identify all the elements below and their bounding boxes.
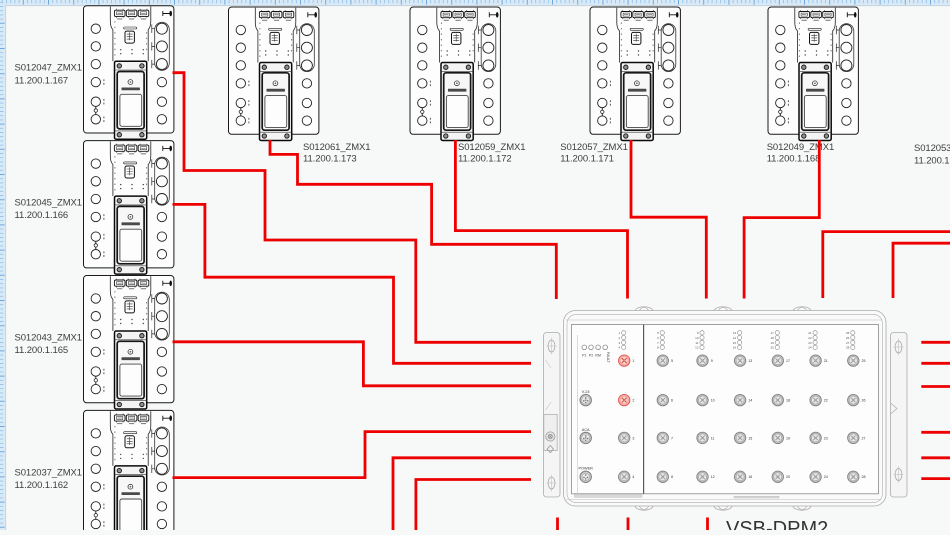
svg-text:14: 14 [748,399,752,403]
svg-text:P1: P1 [582,354,586,358]
svg-text:S012043_ZMX1: S012043_ZMX1 [15,333,82,344]
svg-text:11.200.1.172: 11.200.1.172 [458,154,512,165]
svg-text:11: 11 [711,436,715,440]
svg-text:11.200.1.168: 11.200.1.168 [767,154,821,165]
svg-text:26: 26 [846,336,850,340]
svg-text:10: 10 [695,336,699,340]
svg-text:23: 23 [808,341,812,345]
svg-text:22: 22 [824,399,828,403]
svg-text:22: 22 [808,336,812,340]
svg-text:28: 28 [862,475,866,479]
svg-text:S012057_ZMX1: S012057_ZMX1 [560,142,627,153]
svg-text:15: 15 [733,341,737,345]
svg-text:S012053_ZMX1: S012053_ZMX1 [914,143,950,154]
svg-text:4: 4 [632,475,634,479]
svg-text:27: 27 [846,341,850,345]
svg-text:15: 15 [748,436,752,440]
svg-text:S012059_ZMX1: S012059_ZMX1 [458,142,525,153]
svg-text:23: 23 [824,436,828,440]
svg-text:25: 25 [862,359,866,363]
svg-text:16: 16 [748,475,752,479]
svg-text:5: 5 [671,359,673,363]
svg-text:24: 24 [824,475,828,479]
svg-text:S012049_ZMX1: S012049_ZMX1 [767,142,834,153]
svg-text:19: 19 [786,436,790,440]
svg-text:17: 17 [770,331,774,335]
svg-text:3: 3 [632,436,634,440]
svg-text:26: 26 [862,399,866,403]
svg-text:1: 1 [632,359,634,363]
svg-text:25: 25 [846,331,850,335]
svg-text:11.200.1.173: 11.200.1.173 [303,154,357,165]
svg-text:VSB-DPM2: VSB-DPM2 [726,518,828,530]
svg-text:S012061_ZMX1: S012061_ZMX1 [303,142,370,153]
svg-text:17: 17 [786,359,790,363]
svg-text:27: 27 [862,436,866,440]
svg-text:2: 2 [632,399,634,403]
svg-text:11: 11 [695,341,698,345]
svg-text:6: 6 [671,399,673,403]
svg-text:S012047_ZMX1: S012047_ZMX1 [15,63,82,74]
svg-text:18: 18 [770,336,774,340]
svg-text:10: 10 [711,399,715,403]
svg-text:11.200.1.162: 11.200.1.162 [15,480,69,491]
svg-text:14: 14 [733,336,737,340]
svg-text:11.200.1.169: 11.200.1.169 [914,155,950,166]
svg-text:12: 12 [695,346,699,350]
svg-text:20: 20 [786,475,790,479]
svg-text:11.200.1.165: 11.200.1.165 [15,345,69,356]
svg-text:18: 18 [786,399,790,403]
svg-text:16: 16 [733,346,737,350]
svg-text:19: 19 [770,341,774,345]
svg-text:11.200.1.167: 11.200.1.167 [15,75,69,86]
svg-text:RM: RM [595,354,601,358]
svg-text:28: 28 [846,346,850,350]
svg-text:13: 13 [733,331,737,335]
svg-text:11.200.1.166: 11.200.1.166 [15,210,69,221]
svg-text:13: 13 [748,359,752,363]
svg-text:11.200.1.171: 11.200.1.171 [560,154,614,165]
svg-text:20: 20 [770,346,774,350]
svg-text:12: 12 [711,475,715,479]
svg-text:7: 7 [671,436,673,440]
svg-text:POWER: POWER [579,467,594,471]
svg-text:9: 9 [711,359,713,363]
svg-text:FAULT: FAULT [606,352,610,364]
svg-text:21: 21 [824,359,828,363]
svg-text:24: 24 [808,346,812,350]
svg-text:ACA: ACA [582,428,590,432]
svg-text:V-24: V-24 [582,390,590,394]
svg-text:S012045_ZMX1: S012045_ZMX1 [15,198,82,209]
svg-text:8: 8 [671,475,673,479]
svg-text:21: 21 [808,331,812,335]
svg-text:P2: P2 [589,354,593,358]
svg-text:S012037_ZMX1: S012037_ZMX1 [15,467,82,478]
